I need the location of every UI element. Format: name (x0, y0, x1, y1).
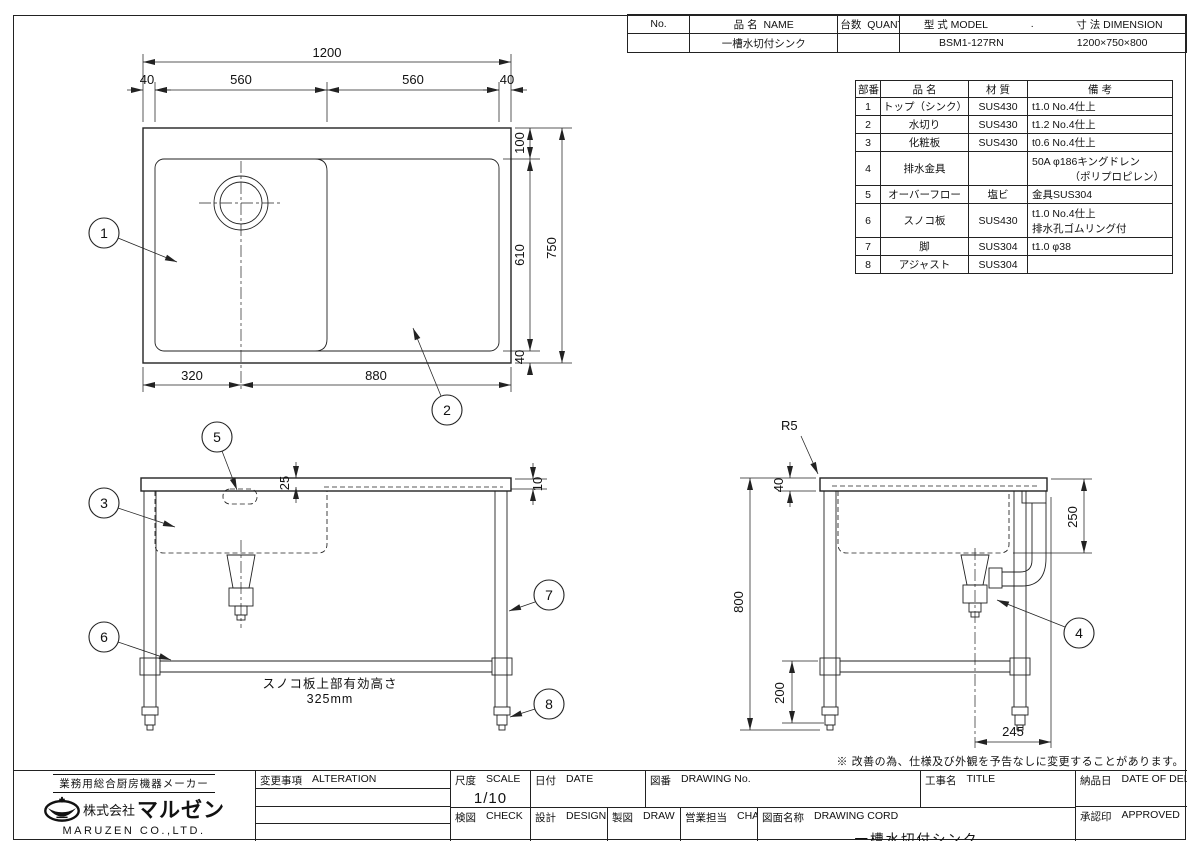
balloon-4: 4 (997, 600, 1094, 648)
dim-corner-radius: R5 (781, 418, 798, 433)
title-cell: 工事名TITLE (920, 771, 1075, 807)
dim-margin-left: 40 (140, 72, 154, 87)
dimension-value: 1200×750×800 (1077, 37, 1148, 49)
legs (144, 491, 507, 707)
company-box: 業務用総合厨房機器メーカー 株式会社 マルゼン MARUZEN CO.,LTD. (13, 771, 255, 841)
dim-overall-depth: 750 (544, 237, 559, 259)
svg-text:2: 2 (443, 402, 451, 418)
shelf-note-line1: スノコ板上部有効高さ (262, 676, 397, 691)
dim-margin-right: 40 (500, 72, 514, 87)
balloon-5: 5 (202, 422, 237, 490)
drawing-sheet: 1200 40 560 560 40 100 610 40 750 320 (0, 0, 1200, 848)
svg-text:6: 6 (100, 629, 108, 645)
balloon-1: 1 (89, 218, 177, 262)
draw-cell: 製図DRAW (607, 807, 680, 841)
alteration-box: 変更事項 ALTERATION (255, 771, 450, 841)
svg-text:5: 5 (213, 429, 221, 445)
approved-cell: 承認印APPROVED (1075, 806, 1187, 841)
revision-disclaimer: ※ 改善の為、仕様及び外観を予告なしに変更することがあります。 (837, 753, 1184, 769)
parts-row: 3 化粧板 SUS430 t0.6 No.4仕上 (856, 134, 1173, 152)
check-cell: 検図CHECK (450, 807, 530, 841)
maruzen-logo-icon (43, 796, 81, 822)
company-tagline: 業務用総合厨房機器メーカー (53, 774, 215, 793)
date-cell: 日付DATE (530, 771, 645, 807)
item-name: 一槽水切付シンク (690, 34, 838, 53)
title-block: 業務用総合厨房機器メーカー 株式会社 マルゼン MARUZEN CO.,LTD.… (13, 770, 1187, 840)
item-no (628, 34, 690, 53)
parts-table: 部番 品 名 材 質 備 考 1 トップ（シンク） SUS430 t1.0 No… (855, 80, 1173, 274)
dim-drain-x: 320 (181, 368, 203, 383)
parts-row: 4 排水金具 50A φ186キングドレン （ポリプロピレン） (856, 152, 1173, 186)
front-view: 25 10 スノコ板上部有効高さ 325mm 3 6 7 (89, 462, 564, 730)
svg-text:1: 1 (100, 225, 108, 241)
dim-edge: 10 (530, 477, 545, 491)
svg-text:4: 4 (1075, 625, 1083, 641)
balloon-8: 8 (510, 689, 564, 719)
parts-row: 7 脚 SUS304 t1.0 φ38 (856, 238, 1173, 256)
col-no: No. (628, 15, 690, 34)
svg-text:7: 7 (545, 587, 553, 603)
shelf-note-line2: 325mm (307, 692, 354, 706)
parts-row: 2 水切り SUS430 t1.2 No.4仕上 (856, 116, 1173, 134)
drawing-title-value: 一槽水切付シンク (762, 828, 1071, 841)
drawing-no-cell: 図番DRAWING No. (645, 771, 920, 807)
col-name: 品 名 NAME (690, 15, 838, 34)
header-table: No. 品 名 NAME 台数 QUANTITY 型 式 MODEL . 寸 法… (627, 14, 1187, 53)
company-name-en: MARUZEN CO.,LTD. (17, 825, 251, 837)
dim-overall-width: 1200 (313, 45, 342, 60)
parts-row: 1 トップ（シンク） SUS430 t1.0 No.4仕上 (856, 98, 1173, 116)
model-value: BSM1-127RN (939, 37, 1004, 49)
dim-bowl-depth: 250 (1065, 506, 1080, 528)
dim-margin-top: 100 (512, 132, 527, 154)
parts-row: 5 オーバーフロー 塩ビ 金具SUS304 (856, 186, 1173, 204)
parts-col-name: 品 名 (881, 81, 969, 98)
parts-col-no: 部番 (856, 81, 881, 98)
dim-drainboard-width: 560 (402, 72, 424, 87)
dim-rest-width: 880 (365, 368, 387, 383)
balloon-3: 3 (89, 488, 175, 527)
dim-drain-offset: 245 (1002, 724, 1024, 739)
parts-col-note: 備 考 (1028, 81, 1173, 98)
bowl-edge (315, 159, 327, 351)
dim-shelf-height: 200 (772, 682, 787, 704)
parts-row: 6 スノコ板 SUS430 t1.0 No.4仕上 排水孔ゴムリング付 (856, 204, 1173, 238)
dim-backguard: 25 (277, 476, 292, 490)
delivery-cell: 納品日DATE OF DELIVERY (1075, 771, 1187, 806)
charge-cell: 営業担当CHARGE (680, 807, 757, 841)
dim-bowl-width: 560 (230, 72, 252, 87)
scale-cell: 尺度SCALE 1/10 (450, 771, 530, 807)
scale-value: 1/10 (455, 790, 526, 807)
parts-row: 8 アジャスト SUS304 (856, 256, 1173, 274)
plan-view: 1200 40 560 560 40 100 610 40 750 320 (89, 45, 572, 490)
dim-margin-bottom: 40 (512, 350, 527, 364)
company-name: マルゼン (137, 794, 225, 824)
balloon-7: 7 (509, 580, 564, 611)
design-cell: 設計DESIGN (530, 807, 607, 841)
balloon-2: 2 (413, 328, 462, 425)
item-qty (838, 34, 900, 53)
shelf (160, 661, 492, 672)
col-model-dim: 型 式 MODEL . 寸 法 DIMENSION (900, 15, 1187, 34)
item-model-dim: BSM1-127RN 1200×750×800 (900, 34, 1187, 53)
drawing-cord-cell: 図面名称DRAWING CORD 一槽水切付シンク (757, 807, 1075, 841)
balloon-6: 6 (89, 622, 171, 660)
dim-inner-depth: 610 (512, 244, 527, 266)
svg-text:8: 8 (545, 696, 553, 712)
dim-overall-height: 800 (731, 591, 746, 613)
parts-col-material: 材 質 (969, 81, 1028, 98)
svg-text:3: 3 (100, 495, 108, 511)
dim-top-thickness: 40 (771, 478, 786, 492)
col-qty: 台数 QUANTITY (838, 15, 900, 34)
side-view: R5 40 800 250 200 245 (731, 418, 1094, 748)
company-prefix: 株式会社 (83, 800, 135, 819)
